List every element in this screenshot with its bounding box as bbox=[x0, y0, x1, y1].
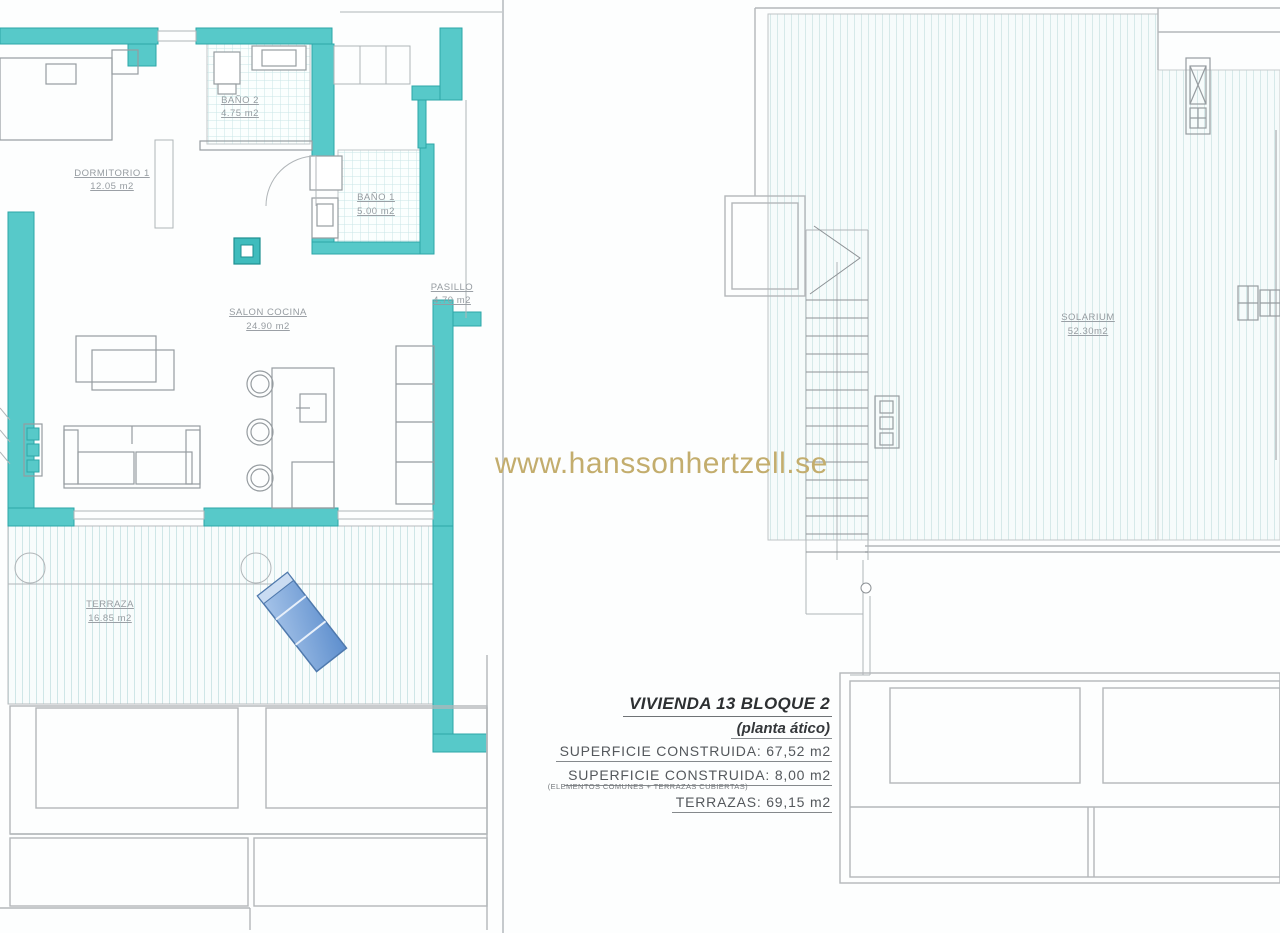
svg-text:PASILLO: PASILLO bbox=[431, 282, 473, 293]
room-label-salon-cocina: SALON COCINA 24.90 m2 bbox=[229, 307, 307, 332]
terrazas-total: TERRAZAS: 69,15 m2 bbox=[672, 794, 832, 813]
superficie-construida-1: SUPERFICIE CONSTRUIDA: 67,52 m2 bbox=[556, 743, 832, 762]
apartment-plan: DORMITORIO 1 12.05 m2 BAÑO 2 4.75 m2 BAÑ… bbox=[0, 0, 505, 933]
svg-text:5.00 m2: 5.00 m2 bbox=[357, 206, 395, 217]
svg-text:16.85 m2: 16.85 m2 bbox=[88, 613, 132, 624]
svg-text:SOLARIUM: SOLARIUM bbox=[1061, 312, 1115, 323]
bed bbox=[0, 50, 138, 140]
svg-text:DORMITORIO 1: DORMITORIO 1 bbox=[74, 168, 150, 179]
bathroom1-fixtures bbox=[310, 156, 342, 238]
plan-info-block: VIVIENDA 13 BLOQUE 2 (planta ático) SUPE… bbox=[502, 694, 832, 818]
radiator-box bbox=[24, 424, 42, 476]
room-label-dormitorio-1: DORMITORIO 1 12.05 m2 bbox=[74, 168, 150, 192]
partition-stub bbox=[155, 140, 173, 228]
svg-text:52.30m2: 52.30m2 bbox=[1068, 326, 1108, 337]
svg-text:BAÑO 1: BAÑO 1 bbox=[357, 192, 395, 203]
door-arc bbox=[266, 156, 316, 206]
plan-title: VIVIENDA 13 BLOQUE 2 bbox=[623, 694, 832, 717]
svg-text:24.90 m2: 24.90 m2 bbox=[246, 321, 290, 332]
closet bbox=[334, 46, 410, 84]
lower-building-outline bbox=[840, 673, 1280, 883]
room-label-pasillo: PASILLO 4.70 m2 bbox=[431, 282, 473, 306]
svg-text:4.75 m2: 4.75 m2 bbox=[221, 108, 259, 119]
watermark-text: www.hanssonhertzell.se bbox=[495, 447, 828, 481]
svg-text:TERRAZA: TERRAZA bbox=[86, 599, 134, 610]
bar-stools bbox=[247, 371, 273, 491]
solarium-deck bbox=[768, 14, 1280, 540]
svg-text:SALON COCINA: SALON COCINA bbox=[229, 307, 307, 318]
svg-text:BAÑO 2: BAÑO 2 bbox=[221, 95, 259, 106]
svg-text:12.05 m2: 12.05 m2 bbox=[90, 181, 134, 192]
kitchen-island bbox=[272, 368, 334, 508]
superficie-note: (ELEMENTOS COMUNES + TERRAZAS CUBIERTAS) bbox=[502, 782, 748, 791]
terrace-deck bbox=[8, 526, 453, 704]
sofa-1 bbox=[76, 336, 174, 390]
sofa-2 bbox=[64, 426, 200, 488]
kitchen-counter bbox=[396, 346, 434, 504]
entry-door-block bbox=[234, 238, 260, 264]
plan-subtitle: (planta ático) bbox=[731, 720, 832, 739]
floor-plan-sheet: DORMITORIO 1 12.05 m2 BAÑO 2 4.75 m2 BAÑ… bbox=[0, 0, 1280, 933]
svg-text:4.70 m2: 4.70 m2 bbox=[433, 295, 471, 306]
